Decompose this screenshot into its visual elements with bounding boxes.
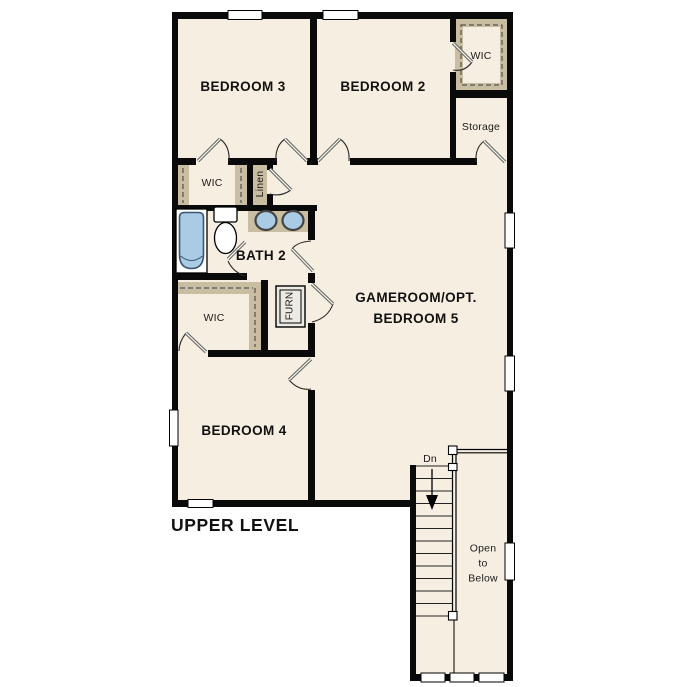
room-label-bath2: BATH 2 xyxy=(236,248,286,264)
bathtub-icon xyxy=(176,209,207,273)
plan-title: UPPER LEVEL xyxy=(171,515,299,536)
closet-label-furnace: FURN xyxy=(284,292,296,321)
room-label-bedroom3: BEDROOM 3 xyxy=(200,79,285,95)
closet-label-wic-bedroom3: WIC xyxy=(201,177,222,189)
closet-label-wic-bedroom2: WIC xyxy=(470,50,491,62)
closet-label-wic-bedroom4: WIC xyxy=(203,312,224,324)
floorplan-upper-level: BEDROOM 3 BEDROOM 2 WIC Storage WIC Line… xyxy=(0,0,687,687)
stairs-down-label: Dn xyxy=(423,453,437,465)
room-label-bedroom4: BEDROOM 4 xyxy=(201,423,286,439)
floorplan-drawing xyxy=(0,0,687,687)
toilet-icon xyxy=(214,207,237,254)
closet-label-storage: Storage xyxy=(462,121,500,133)
closet-label-linen: Linen xyxy=(254,171,266,198)
room-label-gameroom: GAMEROOM/OPT. BEDROOM 5 xyxy=(355,287,476,329)
room-label-bedroom2: BEDROOM 2 xyxy=(340,79,425,95)
floor-area xyxy=(172,12,513,681)
open-to-below-label: Open to Below xyxy=(468,542,498,587)
